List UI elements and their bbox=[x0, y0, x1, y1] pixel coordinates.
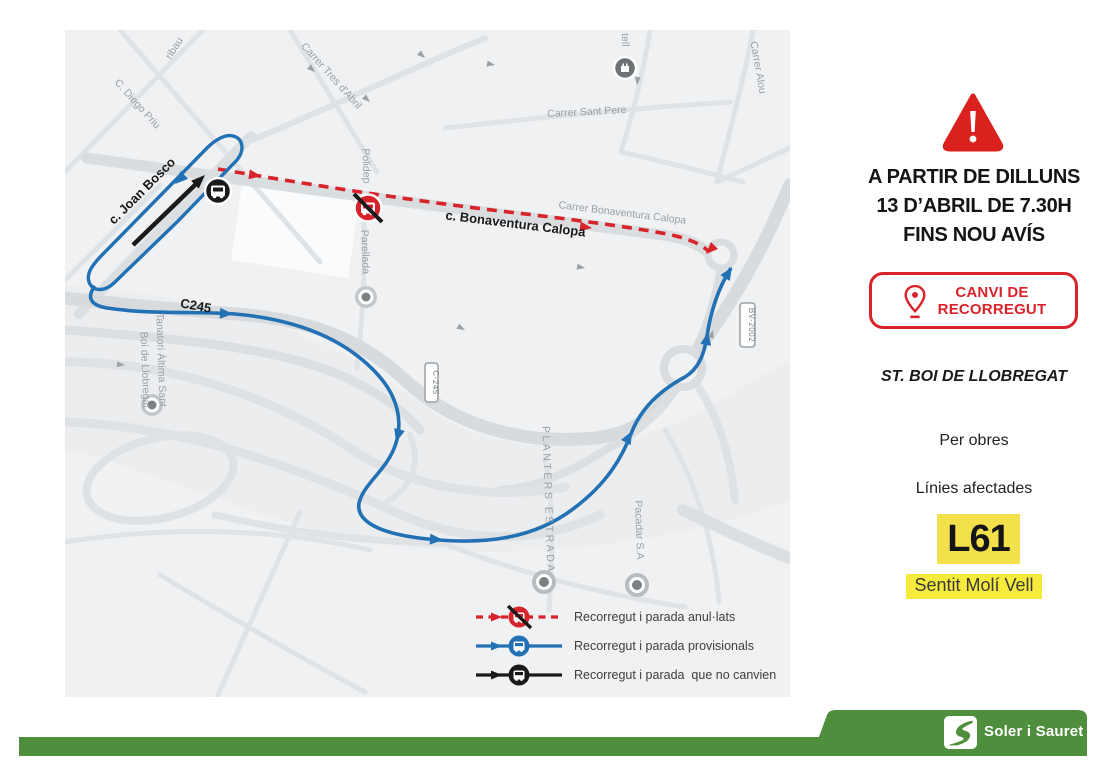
bus-stop-unchanged-icon bbox=[205, 178, 231, 204]
legend-item-cancelled: Recorregut i parada anul·lats bbox=[473, 602, 788, 631]
castle-poi-icon bbox=[614, 57, 636, 79]
legend-item-unchanged: Recorregut i parada que no canvien bbox=[473, 660, 788, 689]
notice-title: A PARTIR DE DILLUNS 13 D’ABRIL DE 7.30H … bbox=[845, 163, 1103, 250]
legend-cancelled-icon bbox=[473, 604, 565, 630]
street-label-polidep: Polidep bbox=[359, 148, 372, 184]
notice-title-line1: A PARTIR DE DILLUNS bbox=[845, 163, 1103, 192]
change-badge-text: CANVI DE RECORREGUT bbox=[938, 284, 1047, 318]
company-name: Soler i Sauret bbox=[984, 723, 1084, 740]
legend-unchanged-icon bbox=[473, 662, 565, 688]
map-canvas: C-245 BV-2002 bbox=[65, 30, 790, 697]
change-badge: CANVI DE RECORREGUT bbox=[869, 272, 1078, 329]
legend-item-provisional: Recorregut i parada provisionals bbox=[473, 631, 788, 660]
notice-title-line3: FINS NOU AVÍS bbox=[845, 221, 1103, 250]
company-logo-s-icon bbox=[947, 719, 975, 747]
street-label-parellada: Parellada bbox=[358, 230, 372, 275]
notice-title-line2: 13 D’ABRIL DE 7.30H bbox=[845, 192, 1103, 221]
notice-page: C-245 BV-2002 bbox=[0, 0, 1103, 780]
direction-badge-wrap: Sentit Molí Vell bbox=[845, 574, 1103, 599]
road-shield-bv2002: BV-2002 bbox=[740, 303, 756, 347]
route-map: C-245 BV-2002 bbox=[65, 30, 790, 697]
street-label-castell: tell bbox=[619, 33, 631, 47]
reason-label: Per obres bbox=[845, 432, 1103, 450]
change-badge-line2: RECORREGUT bbox=[938, 301, 1047, 318]
legend-provisional-label: Recorregut i parada provisionals bbox=[574, 639, 754, 653]
legend-unchanged-label: Recorregut i parada que no canvien bbox=[574, 668, 776, 682]
warning-icon bbox=[941, 92, 1005, 159]
direction-badge: Sentit Molí Vell bbox=[906, 574, 1041, 599]
municipality-label: ST. BOI DE LLOBREGAT bbox=[845, 368, 1103, 386]
change-badge-line1: CANVI DE bbox=[938, 284, 1047, 301]
road-shield-c245: C-245 bbox=[425, 363, 440, 402]
location-pin-icon bbox=[901, 282, 929, 320]
affected-lines-label: Línies afectades bbox=[845, 480, 1103, 498]
company-logo bbox=[944, 716, 977, 749]
legend: Recorregut i parada anul·lats Recorregut… bbox=[473, 602, 788, 689]
street-label-pacadar: Pacadar S.A bbox=[632, 500, 646, 559]
legend-cancelled-label: Recorregut i parada anul·lats bbox=[574, 610, 735, 624]
road-shield-bv2002-label: BV-2002 bbox=[747, 308, 756, 342]
line-badge: L61 bbox=[937, 514, 1020, 564]
legend-provisional-icon bbox=[473, 633, 565, 659]
road-shield-c245-label: C-245 bbox=[431, 370, 440, 394]
bus-stop-cancelled-icon bbox=[354, 194, 382, 222]
